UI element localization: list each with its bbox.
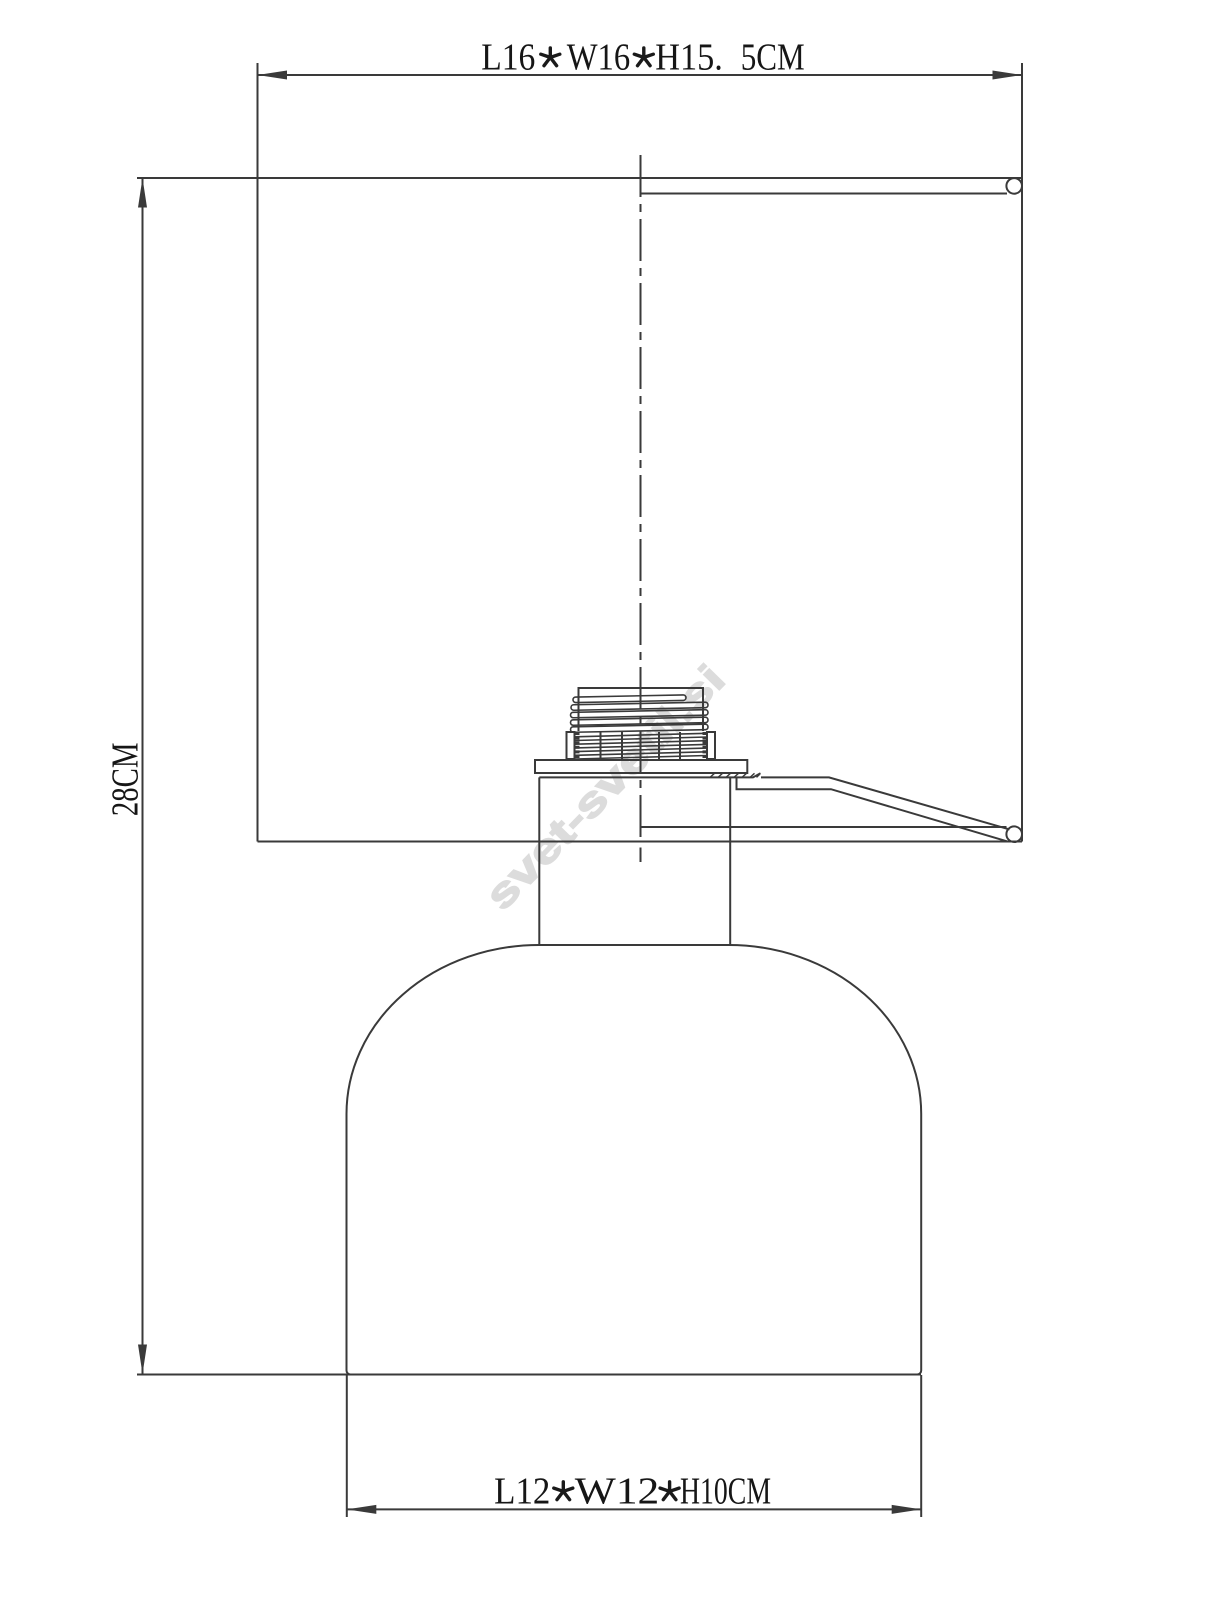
svg-text:H10CM: H10CM — [680, 1471, 771, 1513]
svg-text:L16: L16 — [481, 37, 535, 79]
svg-text:W16: W16 — [567, 37, 631, 79]
svg-text:5CM: 5CM — [741, 37, 805, 79]
svg-text:28CM: 28CM — [105, 743, 147, 817]
svg-text:H15.: H15. — [655, 37, 723, 79]
svg-text:W12: W12 — [575, 1471, 660, 1513]
svg-text:L12: L12 — [494, 1471, 550, 1513]
